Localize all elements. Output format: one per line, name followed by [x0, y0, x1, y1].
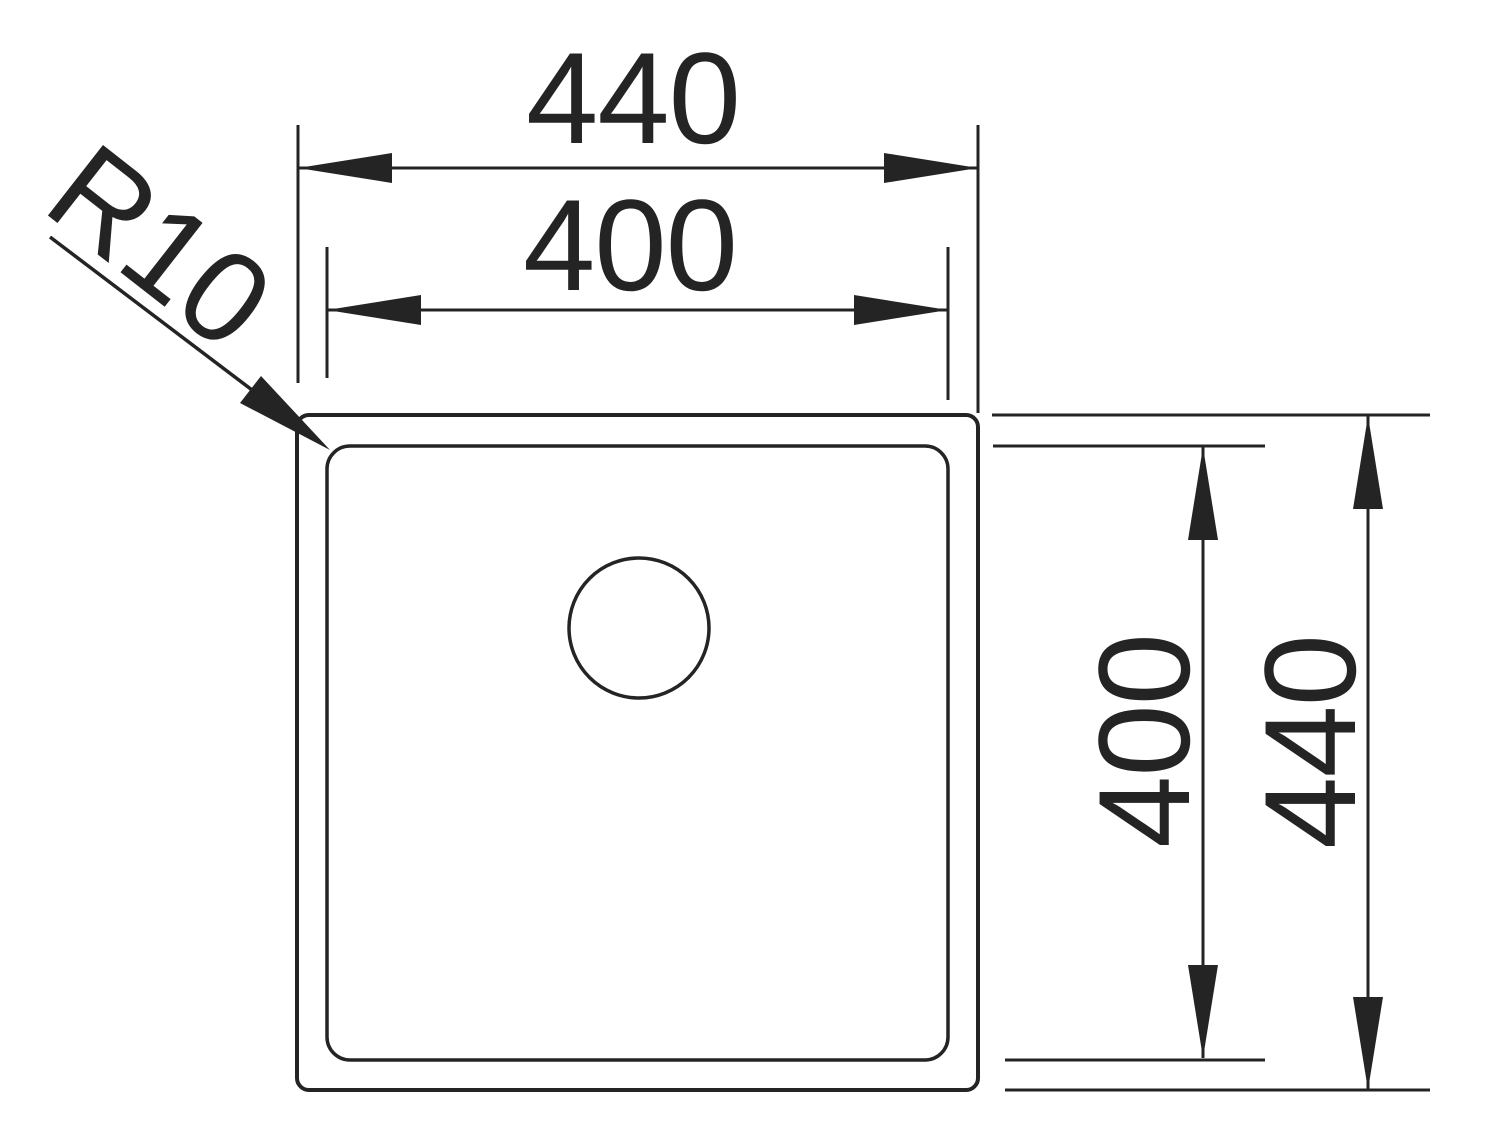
sink-bowl-outline [327, 446, 948, 1060]
arrowhead-left-icon [327, 295, 421, 325]
arrowhead-up-icon [1353, 416, 1383, 509]
arrowhead-down-icon [1188, 965, 1218, 1058]
technical-drawing: 440 400 400 440 R10 [0, 0, 1500, 1144]
dim-label-right-inner-height: 400 [1069, 591, 1219, 891]
sink-outer-outline [297, 415, 978, 1090]
dim-label-top-inner-width: 400 [480, 170, 780, 320]
dim-label-right-outer-height: 440 [1235, 592, 1385, 892]
arrowhead-up-icon [1188, 447, 1218, 540]
dim-label-top-outer-width: 440 [483, 23, 783, 173]
arrowhead-right-icon [854, 295, 948, 325]
arrowhead-right-icon [884, 153, 978, 183]
arrowhead-left-icon [298, 153, 392, 183]
drain-circle [569, 558, 709, 698]
arrowhead-down-icon [1353, 997, 1383, 1090]
